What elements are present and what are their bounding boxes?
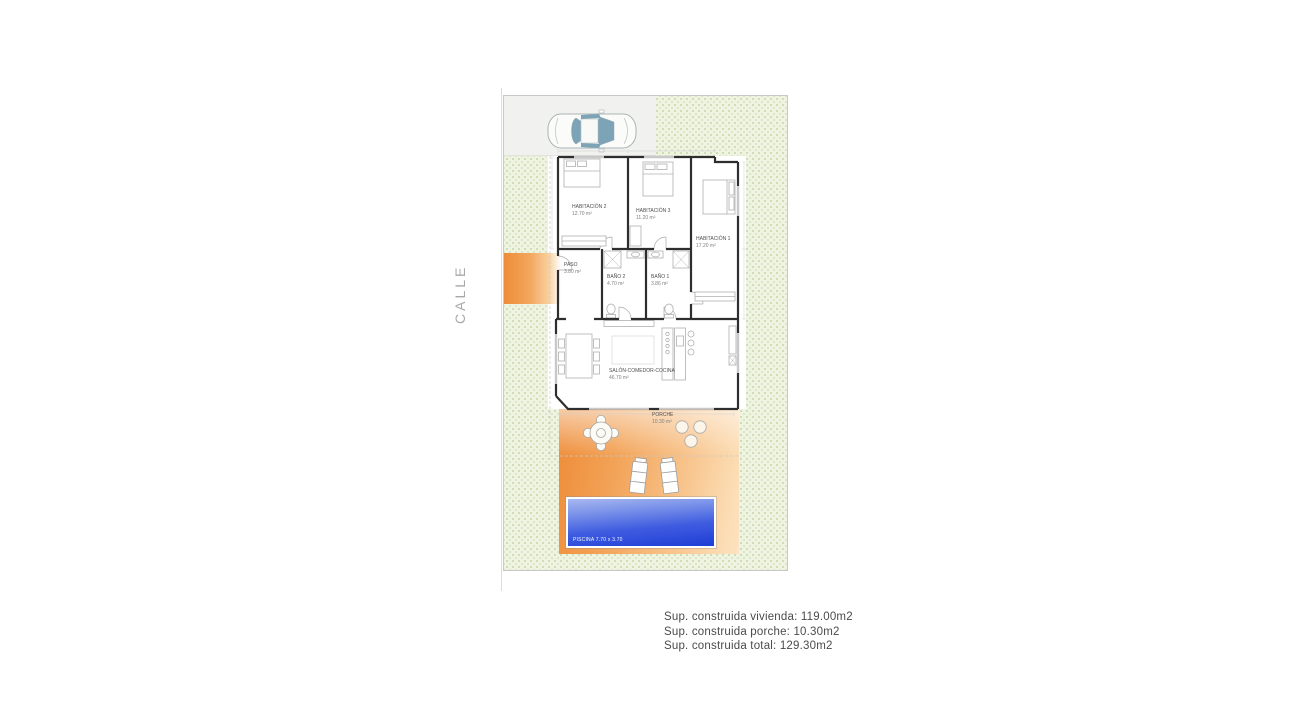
page: CALLE PISCINA 7.70 x 3.70 — [0, 0, 1290, 727]
room-label-paso: PASO 3.80 m² — [564, 262, 581, 275]
built-area-summary: Sup. construida vivienda: 119.00m2 Sup. … — [664, 610, 853, 654]
street-label: CALLE — [452, 266, 474, 324]
room-label-bano-2: BAÑO 2 4.70 m² — [607, 274, 625, 287]
room-label-bano-1: BAÑO 1 3.86 m² — [651, 274, 669, 287]
room-label-habitacion-1: HABITACIÓN 1 17.20 m² — [696, 236, 730, 249]
summary-line-vivienda: Sup. construida vivienda: 119.00m2 — [664, 610, 853, 625]
site-plan: PISCINA 7.70 x 3.70 — [503, 95, 788, 571]
entry-walkway — [504, 253, 561, 304]
summary-line-total: Sup. construida total: 129.30m2 — [664, 639, 853, 654]
car-icon — [546, 109, 638, 153]
pool-label: PISCINA 7.70 x 3.70 — [573, 537, 623, 543]
room-label-porche: PORCHE 10.30 m² — [652, 412, 673, 425]
room-label-habitacion-2: HABITACIÓN 2 12.70 m² — [572, 204, 606, 217]
room-label-salon: SALÓN-COMEDOR-COCINA 46.70 m² — [609, 368, 675, 381]
room-label-habitacion-3: HABITACIÓN 3 11.20 m² — [636, 208, 670, 221]
street-curb-line — [501, 88, 502, 591]
summary-line-porche: Sup. construida porche: 10.30m2 — [664, 625, 853, 640]
pool: PISCINA 7.70 x 3.70 — [566, 497, 716, 548]
